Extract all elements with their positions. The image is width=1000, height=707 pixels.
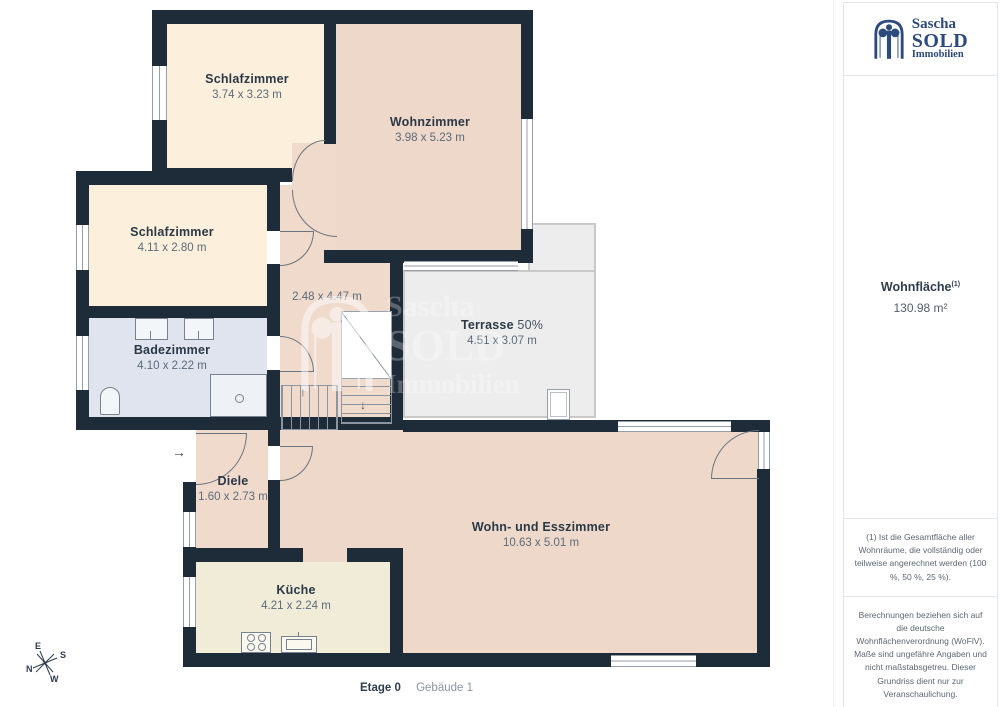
disclaimer-text: Berechnungen beziehen sich auf die deuts… xyxy=(854,610,987,699)
footnote-marker: (1) xyxy=(952,280,961,287)
stairs-up-arrow-icon: ↑ xyxy=(300,385,306,399)
window xyxy=(611,655,696,667)
window xyxy=(183,512,196,547)
logo-line-2: SOLD xyxy=(912,32,968,50)
wall xyxy=(183,548,303,562)
floor-plan: ↑ ↓ → Schlafzimmer3.74 x 3.23 m Wohnzimm… xyxy=(0,0,833,707)
wall xyxy=(268,480,280,548)
footnote-text: (1) Ist die Gesamtfläche aller Wohnräume… xyxy=(855,532,987,582)
room-schlafzimmer-2 xyxy=(89,185,267,306)
wall xyxy=(324,24,336,144)
window xyxy=(183,577,196,627)
logo-line-3: Immobilien xyxy=(912,50,968,60)
svg-text:E: E xyxy=(35,641,41,651)
floor-label: Etage 0 xyxy=(360,682,401,694)
floor-selector-bar: Etage 0 Gebäude 1 xyxy=(0,682,833,694)
wall xyxy=(267,185,280,231)
svg-text:S: S xyxy=(60,650,66,660)
compass-icon: E S N W xyxy=(15,625,77,687)
stove xyxy=(241,632,271,653)
wall xyxy=(76,171,89,430)
floorplan-page: ↑ ↓ → Schlafzimmer3.74 x 3.23 m Wohnzimm… xyxy=(0,0,1000,707)
bathroom-sink xyxy=(184,318,214,340)
sidebar: Sascha SOLD Immobilien Wohnfläche(1) 130… xyxy=(843,3,998,707)
logo-icon xyxy=(873,18,905,60)
wall xyxy=(267,264,280,306)
svg-text:N: N xyxy=(26,664,33,674)
wall xyxy=(390,548,403,667)
company-logo: Sascha SOLD Immobilien xyxy=(843,2,998,76)
entry-arrow-icon: → xyxy=(172,444,186,460)
living-area-title: Wohnfläche(1) xyxy=(881,280,960,294)
footnote-box: (1) Ist die Gesamtfläche aller Wohnräume… xyxy=(843,518,998,597)
room-wohnzimmer xyxy=(336,24,521,250)
window xyxy=(76,336,89,390)
window xyxy=(758,432,770,469)
window xyxy=(152,66,167,120)
staircase-down xyxy=(341,377,392,424)
window xyxy=(618,421,731,432)
shower xyxy=(210,374,267,417)
wall xyxy=(152,10,533,24)
building-label: Gebäude 1 xyxy=(416,682,473,694)
window xyxy=(76,225,89,270)
kitchen-sink xyxy=(281,636,317,653)
stairs-down-arrow-icon: ↓ xyxy=(360,398,366,412)
wall xyxy=(268,430,280,446)
toilet xyxy=(100,387,120,415)
wall xyxy=(183,482,196,667)
window xyxy=(521,119,533,229)
wall xyxy=(76,306,280,318)
wall xyxy=(76,171,280,185)
living-area-box: Wohnfläche(1) 130.98 m² xyxy=(843,75,998,519)
bathroom-sink xyxy=(135,318,168,340)
disclaimer-box: Berechnungen beziehen sich auf die deuts… xyxy=(843,596,998,707)
wall xyxy=(267,318,280,336)
terrace-door xyxy=(547,389,570,420)
sidebar-divider xyxy=(833,0,834,707)
wall xyxy=(757,469,770,667)
window xyxy=(404,261,518,271)
living-area-value: 130.98 m² xyxy=(893,301,947,315)
staircase-up xyxy=(281,385,338,430)
stair-void xyxy=(341,311,392,379)
room-terrasse-upper xyxy=(528,223,596,272)
